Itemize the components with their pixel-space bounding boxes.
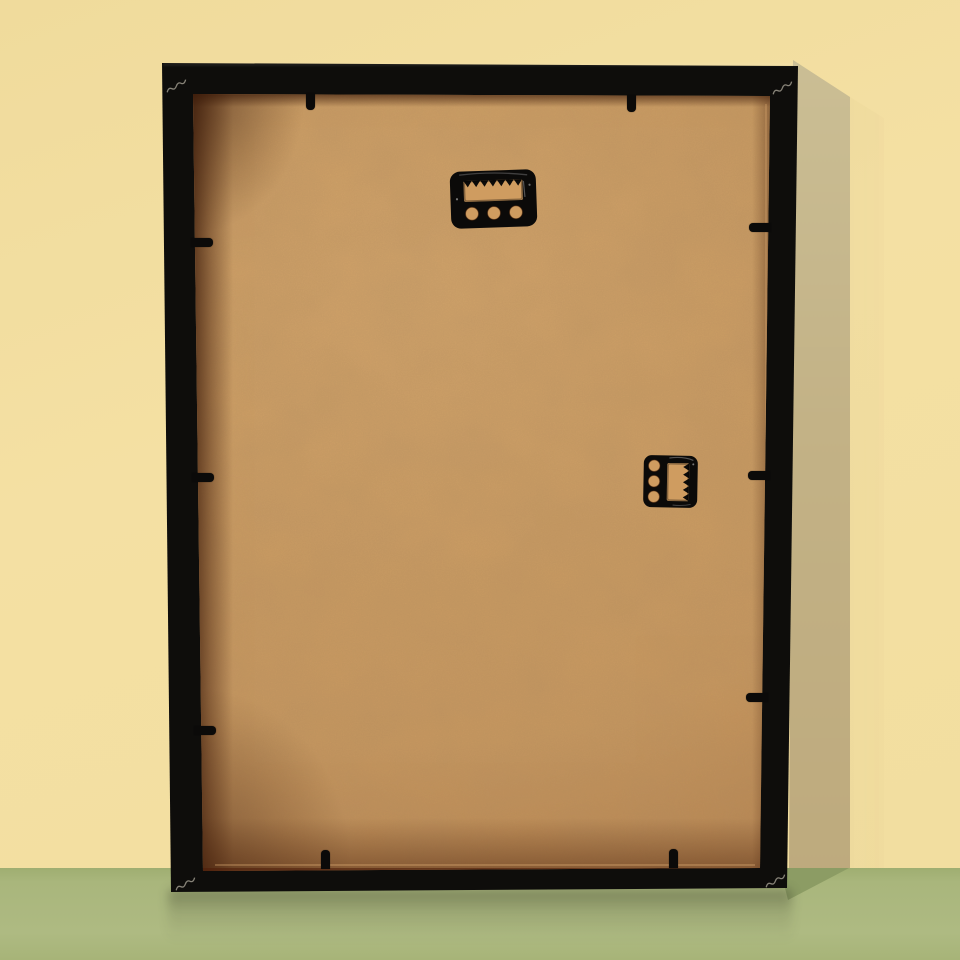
sawtooth-hanger-portrait	[449, 168, 538, 229]
retaining-tab-top	[627, 95, 636, 112]
corner-joint-mark-top-right	[769, 72, 795, 98]
frame-edge-highlight	[163, 63, 797, 66]
retaining-tab-bottom	[321, 850, 330, 869]
stage	[0, 0, 960, 960]
sawtooth-hanger-landscape	[643, 455, 699, 509]
corner-joint-mark-bottom-right	[762, 865, 788, 891]
retaining-tab-left	[192, 473, 214, 482]
corner-joint-mark-bottom-left	[172, 868, 198, 894]
retaining-tab-right	[749, 223, 771, 232]
corner-joint-mark-top-left	[163, 70, 189, 96]
sawtooth-hanger-portrait-graphic	[449, 168, 538, 229]
retaining-tab-right	[748, 471, 770, 480]
retaining-tab-bottom	[669, 849, 678, 868]
frame-floor-reflection	[168, 889, 792, 941]
retaining-tab-right	[746, 693, 768, 702]
retaining-tab-top	[306, 93, 315, 110]
retaining-tab-left	[191, 238, 213, 247]
retaining-tab-left	[194, 726, 216, 735]
sawtooth-hanger-landscape-graphic	[643, 455, 699, 509]
